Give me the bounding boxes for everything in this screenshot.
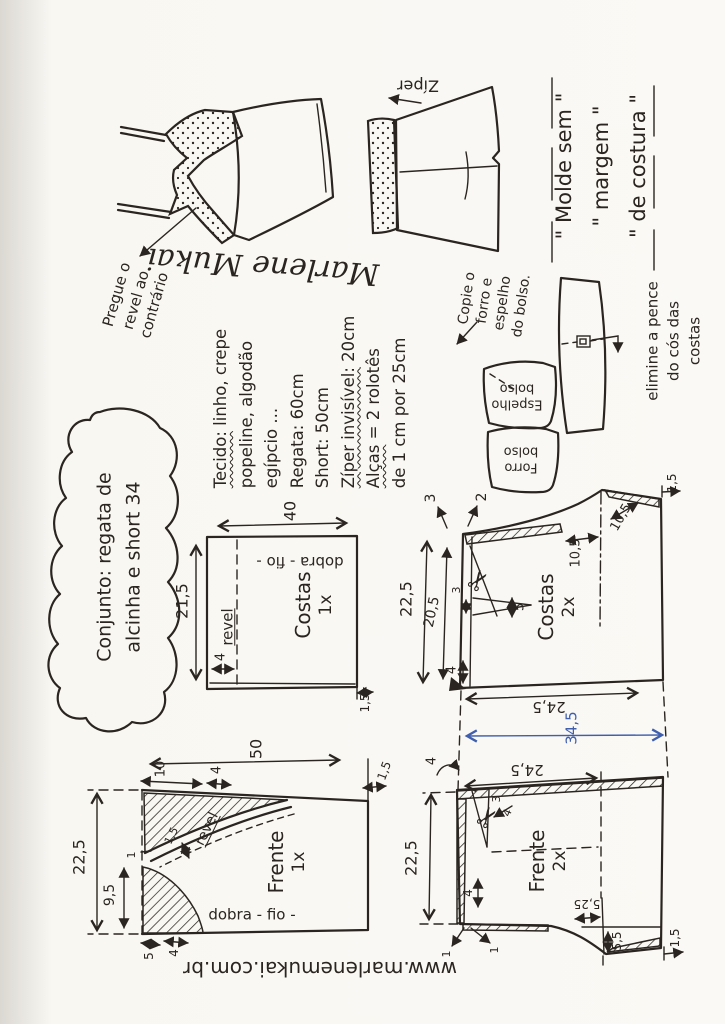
dim-height: 22,5: [402, 840, 423, 876]
materials-line: de 1 cm por 25cm: [387, 338, 413, 489]
fold-label: dobra - fio -: [256, 551, 343, 571]
dim-crotch-a: 10,5: [569, 539, 586, 568]
title-bubble-text: Conjunto: regata de alcinha e short 34: [91, 472, 148, 661]
dim-hem: 1,5: [358, 693, 374, 712]
dim-hem-w: 5,25: [574, 895, 601, 911]
pattern-scan-page: Pregue o revel ao contrário Marlene Muka…: [0, 0, 725, 1024]
dim-shoulder: 10: [154, 761, 171, 778]
shorts-waistband: [368, 119, 398, 233]
dim-hem-w-arrow: [575, 917, 600, 919]
materials-line: egípcio ...: [259, 408, 285, 488]
pocket-forro-label: Forro bolso: [504, 443, 539, 474]
pocket-espelho-label: Espelho bolso: [491, 380, 542, 411]
revel-label: revel: [218, 608, 238, 645]
fold-label: dobra - fio -: [208, 905, 295, 925]
piece-label-frente-1x: Frente 1x: [264, 831, 310, 894]
materials-line: popeline, algodão: [233, 341, 259, 488]
dim-10-arrow: [141, 781, 202, 784]
dim-neck: 9,5: [101, 884, 119, 906]
cos-note-line: costas: [685, 317, 706, 365]
molde-line: " de costura ": [619, 94, 656, 238]
camisole-sketch: [118, 99, 333, 256]
molde-line: " Molde sem ": [546, 93, 583, 240]
website-url: www.marlenemukai.com.br: [183, 956, 457, 982]
cos-note-line: do cós das: [664, 301, 685, 381]
dim-b2: 4: [167, 949, 183, 957]
camisole-body: [233, 99, 333, 240]
materials-line: Alças = 2 rolotês: [361, 348, 387, 488]
dim-waist: 24,5: [510, 759, 543, 779]
ziper-arrow: [389, 98, 421, 103]
molde-note: " Molde sem " " margem " " de costura ": [546, 93, 656, 240]
dim-hem-h: 5,5: [610, 931, 626, 950]
dim-height: 22,5: [397, 581, 418, 617]
dim-40-arrow: [219, 523, 346, 526]
ziper-label: Zíper: [397, 75, 439, 96]
piece-label-costas-2x: Costas 2x: [534, 573, 580, 640]
dim-total-width: 34,5: [562, 711, 582, 744]
materials-note: Tecido: linho, crepe popeline, algodão e…: [208, 316, 413, 489]
title-line: Conjunto: regata de: [91, 472, 120, 661]
dim-width: 50: [247, 739, 268, 759]
dim-50-arrow: [151, 760, 339, 764]
pocket-note: Copie o forro e espelho do bolso.: [454, 266, 535, 339]
dim-waist: 24,5: [532, 696, 565, 716]
materials-line: Zíper invisível: 20cm: [336, 316, 362, 489]
materials-line: Tecido: linho, crepe: [208, 329, 234, 488]
dim-ease: 4: [425, 757, 442, 765]
materials-line: Regata: 60cm: [284, 373, 310, 488]
piece-label-costas-1x: Costas 1x: [291, 571, 337, 638]
materials-line: Short: 50cm: [310, 387, 336, 488]
dim-leg: 4: [445, 666, 462, 674]
shorts-sketch: [368, 87, 499, 251]
dim-height: 22,5: [70, 839, 91, 875]
dim-hem: 1,5: [665, 473, 681, 492]
dim-one-b: 1: [488, 947, 502, 954]
dim-strap: 4: [210, 766, 227, 774]
cos-note-line: elimine a pence: [643, 281, 664, 401]
dim-width: 40: [281, 501, 302, 521]
dim-20-5-arrow: [443, 548, 447, 679]
dim-dart-a: 3: [490, 796, 504, 803]
dim-b1: 5: [142, 952, 158, 960]
dim-height: 21,5: [173, 583, 194, 619]
title-line: alcinha e short 34: [119, 481, 148, 652]
dim-dart-width: 3: [450, 587, 464, 594]
dim-22-5-arrow: [429, 795, 431, 919]
dim-4-arrow: [207, 783, 231, 785]
piece-label-frente-2x: Frente 2x: [525, 830, 571, 893]
raise-2-arrow: [468, 506, 477, 526]
dim-up2: 2: [473, 493, 491, 502]
ease-4-arrow: [437, 765, 459, 775]
dim-notch: 1: [125, 852, 139, 859]
waistband-piece-sketch: [559, 278, 618, 433]
dim-up1: 3: [422, 494, 440, 503]
dim-hem: 1,5: [668, 928, 684, 947]
dim-leg: 4: [461, 889, 477, 897]
cos-note: elimine a pence do cós das costas: [643, 281, 706, 401]
dim-dart-depth: 5: [513, 603, 530, 611]
dim-revel: 4: [214, 653, 231, 661]
raise-3-arrow: [438, 507, 447, 528]
molde-line: " margem ": [583, 106, 620, 227]
